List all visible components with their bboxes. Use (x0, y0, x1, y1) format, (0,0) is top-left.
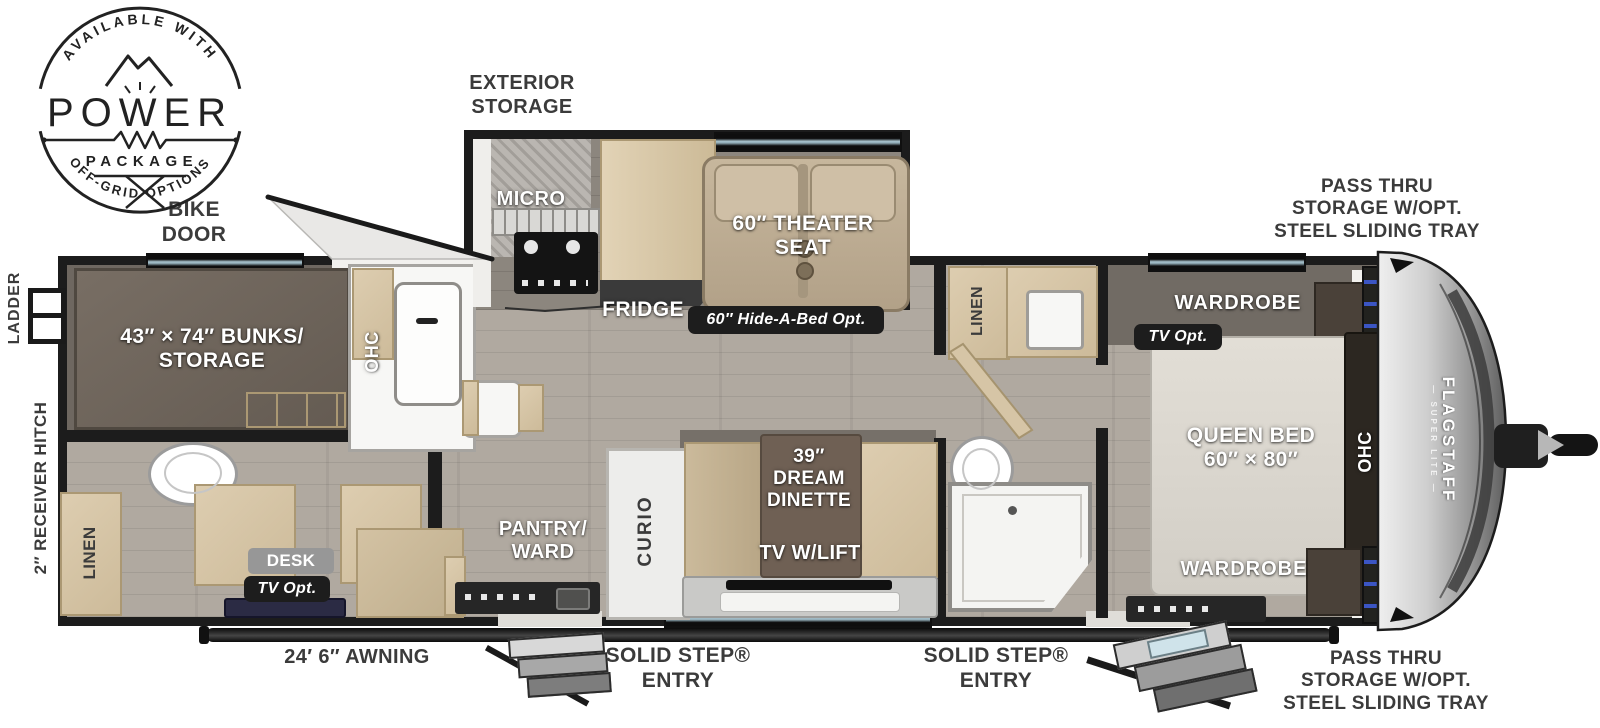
fridge-label: FRIDGE (588, 298, 698, 322)
slide-side-wall-white (473, 139, 491, 307)
entry-right-label: SOLID STEP® ENTRY (914, 644, 1078, 694)
range-grate (522, 280, 588, 286)
exterior-storage-label: EXTERIOR STORAGE (456, 72, 588, 119)
ohc-bed-label: OHC (1355, 422, 1373, 482)
theater-label: 60″ THEATER SEAT (702, 212, 904, 260)
receiver-hitch-label: 2″ RECEIVER HITCH (31, 378, 49, 598)
tv-lift-label: TV W/LIFT (742, 542, 878, 565)
hide-a-bed-pill: 60″ Hide-A-Bed Opt. (688, 306, 884, 334)
wardrobe-top-label: WARDROBE (1158, 292, 1318, 315)
tv-lift-soundbar (720, 592, 900, 612)
pass-thru-top-label: PASS THRU STORAGE W/OPT. STEEL SLIDING T… (1262, 176, 1492, 243)
badge-package-text: PACKAGE (86, 153, 198, 170)
theater-cupholder-2 (796, 262, 814, 280)
bunk-bed-label: 43″ × 74″ BUNKS/ STORAGE (120, 325, 304, 373)
bike-door-line (268, 197, 492, 259)
linen-bath-label: LINEN (969, 271, 985, 351)
desk-label: DESK (267, 551, 315, 571)
brand-model: — SUPER LITE — (1430, 385, 1439, 495)
curio-label: CURIO (635, 471, 655, 591)
range-burner-right (566, 240, 580, 254)
power-package-badge: AVAILABLE WITH POWER PACKAGE OFF-GRID OP… (30, 2, 250, 218)
hide-a-bed-label: 60″ Hide-A-Bed Opt. (706, 311, 865, 329)
badge-power-text: POWER (47, 91, 233, 135)
bedroom-window (1148, 253, 1306, 272)
awning-endcap-right (1329, 626, 1339, 644)
desk-tv-label: TV Opt. (258, 580, 317, 598)
pantry-label: PANTRY/ WARD (478, 518, 608, 564)
ladder-rung (33, 313, 61, 318)
awning-endcap-left (199, 626, 209, 644)
theater-window (714, 132, 902, 152)
range-burner-left (524, 240, 538, 254)
galley-sink (556, 588, 590, 610)
bath-wall-left-a (934, 265, 946, 355)
bunk-step (246, 392, 346, 428)
awning-label: 24′ 6″ AWNING (262, 646, 452, 670)
floorplan-canvas: 43″ × 74″ BUNKS/ STORAGE OHC LINEN DESK … (0, 0, 1600, 728)
ladder-label: LADDER (6, 268, 22, 348)
entry-left-label: SOLID STEP® ENTRY (596, 644, 760, 694)
tv-lift-slot (726, 580, 892, 590)
badge-arc-top-text: AVAILABLE WITH (59, 11, 222, 63)
bath-toilet-lid (462, 380, 479, 436)
badge-mountains-icon (106, 56, 172, 86)
linen-rear-label: LINEN (80, 503, 98, 603)
brand-name: FLAGSTAFF (1439, 377, 1459, 504)
ohc-bunk-label: OHC (362, 322, 380, 382)
bed-tv-pill: TV Opt. (1134, 324, 1222, 350)
bath-side-cabinet (518, 384, 544, 432)
fridge-cabinet (600, 139, 716, 287)
queen-bed-label: QUEEN BED 60″ × 80″ (1150, 424, 1352, 472)
shelf-unit-bottom (1362, 546, 1398, 624)
dinette-label: 39″ DREAM DINETTE (760, 446, 858, 512)
micro-label: MICRO (476, 188, 586, 211)
galley-counter-handles (465, 594, 545, 600)
bed-tv-label: TV Opt. (1149, 328, 1208, 346)
shower-drain (1008, 506, 1017, 515)
badge-arc-top-textpath: AVAILABLE WITH (59, 11, 222, 63)
wardrobe-bottom-label: WARDROBE (1164, 558, 1324, 581)
rear-room-wall (58, 430, 350, 442)
desk-pill: DESK (248, 548, 334, 574)
pass-thru-bottom-label: PASS THRU STORAGE W/OPT. STEEL SLIDING T… (1268, 648, 1504, 715)
bath-sink (394, 282, 462, 406)
bath-faucet (416, 318, 438, 324)
desk-tv-pill: TV Opt. (244, 576, 330, 602)
brand-badge: FLAGSTAFF — SUPER LITE — (1422, 355, 1466, 525)
bath-vanity-sink (1026, 290, 1084, 350)
bike-door-panel (268, 197, 492, 259)
bedroom-dresser-handles (1138, 606, 1218, 612)
toilet-rear-bowl (164, 452, 222, 494)
bath-wall-right-b (1096, 428, 1108, 618)
toilet-bath-bowl (962, 448, 1000, 490)
